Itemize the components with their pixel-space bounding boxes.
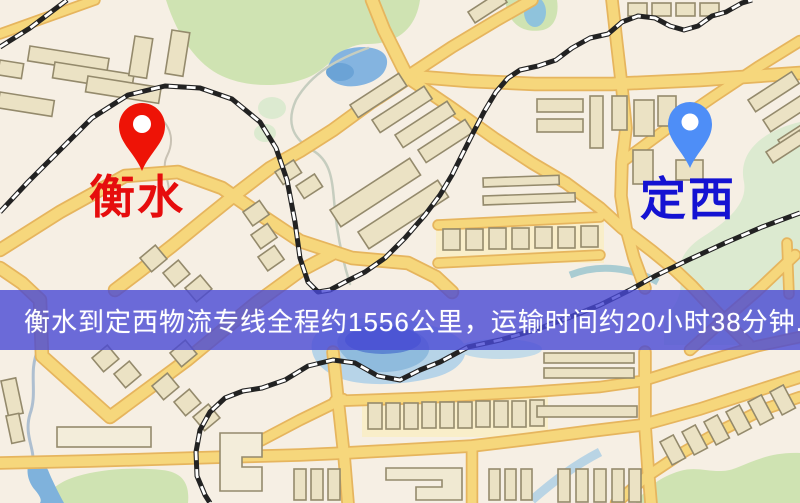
- origin-pin-icon[interactable]: [119, 103, 165, 171]
- map-canvas[interactable]: 衡水 定西: [0, 0, 800, 503]
- route-info-text: 衡水到定西物流专线全程约1556公里，运输时间约20小时38分钟.: [24, 302, 800, 339]
- origin-city-label: 衡水: [89, 172, 185, 223]
- logistics-map-image: 衡水 定西 衡水到定西物流专线全程约1556公里，运输时间约20小时38分钟.: [0, 0, 800, 503]
- destination-pin-icon[interactable]: [668, 102, 712, 168]
- route-info-banner: 衡水到定西物流专线全程约1556公里，运输时间约20小时38分钟.: [0, 290, 800, 350]
- destination-city-label: 定西: [640, 174, 736, 225]
